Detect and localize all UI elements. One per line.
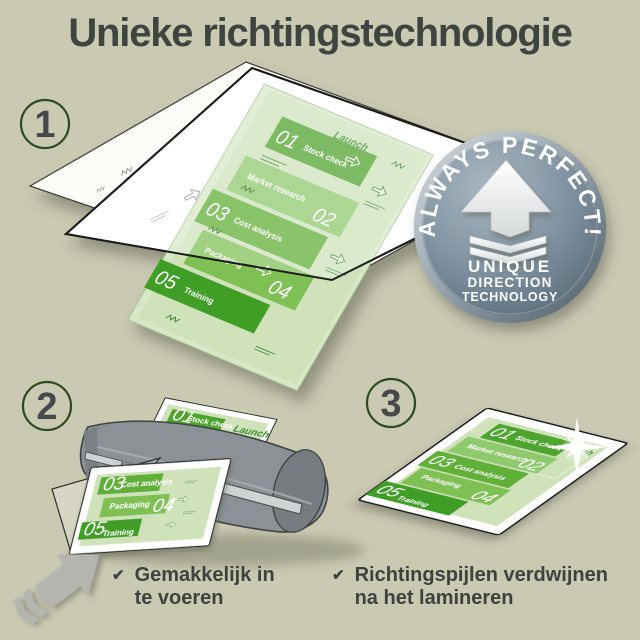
check-icon: ✔ xyxy=(332,567,345,610)
step2-number: 2 xyxy=(36,386,57,428)
checklist-item2-line1: Richtingspijlen verdwijnen xyxy=(355,564,608,587)
checklist-item-easy-feed: ✔ Gemakkelijk in te voeren xyxy=(112,564,275,610)
check-icon: ✔ xyxy=(112,567,125,610)
badge-line-unique: UNIQUE xyxy=(468,257,552,276)
page-title: Unieke richtingstechnologie xyxy=(0,11,640,56)
poster: { "page": {"title": "Unieke richtingstec… xyxy=(0,0,640,640)
checklist-text: Gemakkelijk in te voeren xyxy=(135,564,275,610)
document-exiting: 03 Cost analysis Packaging 04 05 Trainin… xyxy=(69,459,231,555)
checklist-item2-line2: na het lamineren xyxy=(355,587,608,610)
always-perfect-badge: ALWAYS PERFECT! UNIQUE DIRECTION TECHNOL… xyxy=(414,131,606,323)
badge-line-direction: DIRECTION xyxy=(467,275,552,290)
checklist-text: Richtingspijlen verdwijnen na het lamine… xyxy=(355,564,608,610)
checklist-item-arrows-disappear: ✔ Richtingspijlen verdwijnen na het lami… xyxy=(332,564,608,610)
step3-number: 3 xyxy=(380,383,401,425)
laminated-sheet: 01 Stock check Market research 02 03 Cos… xyxy=(358,408,628,535)
step3-scene: 3 01 Stock check Market research 02 03 C… xyxy=(358,379,628,535)
illustration: 1 Launch 01 Stoc xyxy=(0,0,640,640)
checklist-item1-line1: Gemakkelijk in xyxy=(135,564,275,587)
badge-line-technology: TECHNOLOGY xyxy=(462,290,558,304)
step1-number: 1 xyxy=(34,104,55,146)
checklist-item1-line2: te voeren xyxy=(135,587,275,610)
